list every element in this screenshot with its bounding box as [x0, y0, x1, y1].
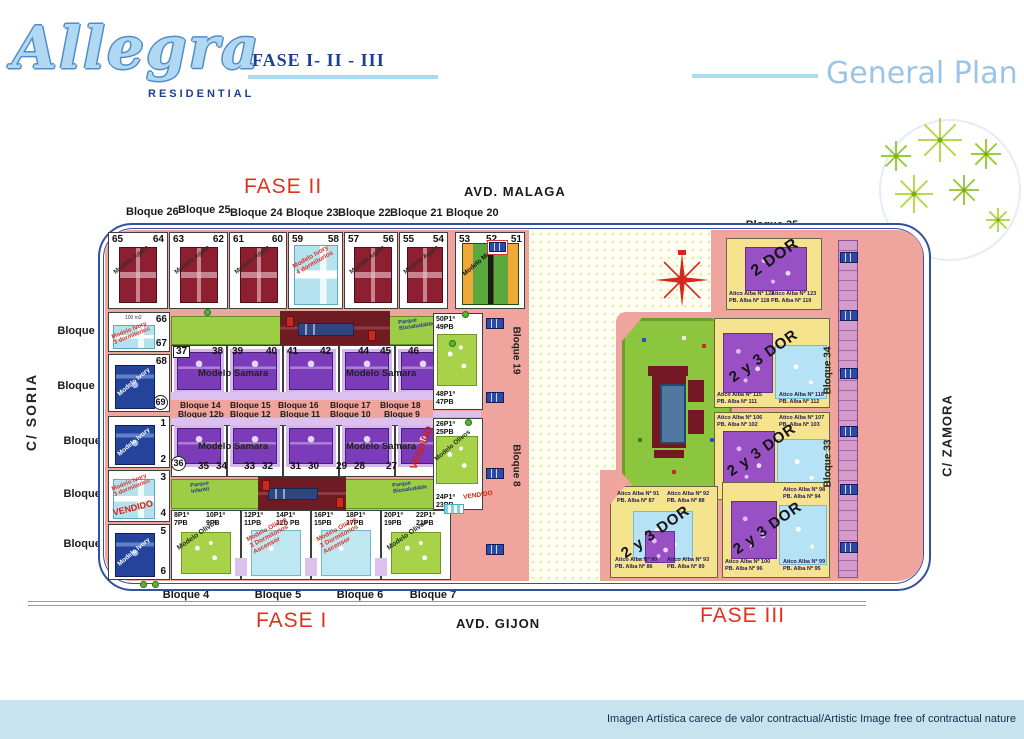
- bloque-label-25: Bloque 25: [178, 204, 231, 216]
- atico-label: Atico Alba Nº 100 PB. Alba Nº 96: [725, 559, 770, 572]
- vehicle-icon: [298, 323, 354, 336]
- tree-icon: [152, 581, 159, 588]
- phases-title: FASE I- II - III: [252, 50, 385, 71]
- street-label-malaga: AVD. MALAGA: [464, 184, 566, 199]
- bloque-label-33: Bloque 33: [823, 419, 834, 509]
- building-samara: [289, 352, 333, 390]
- street-edge-line: [28, 601, 866, 606]
- vehicle-icon: [268, 488, 318, 500]
- plot-number: 36: [171, 456, 186, 471]
- plot-number: 37: [173, 346, 190, 358]
- tree-icon: [449, 340, 456, 347]
- plot-number: 58: [328, 235, 339, 245]
- garage-band: [433, 411, 481, 417]
- model-label: Modelo Samara: [198, 368, 268, 379]
- compass-rose-icon: [652, 250, 712, 310]
- plot-number: 33: [244, 462, 255, 472]
- plot-number: 55: [403, 235, 414, 245]
- plot-cell: 1 2 Modelo Ivory: [108, 416, 170, 468]
- plot-number: 64: [153, 235, 164, 245]
- atico-label: Atico Alba Nº 98 PB. Alba Nº 94: [783, 487, 825, 500]
- clubhouse: [654, 450, 684, 458]
- plot-number: 42: [320, 347, 331, 357]
- area-note: 100 m2: [125, 315, 142, 321]
- street-label-gijon: AVD. GIJON: [456, 616, 540, 631]
- plot-number: 29: [336, 462, 347, 472]
- garden-speck: [672, 470, 676, 474]
- plot-number: 67: [156, 339, 167, 349]
- plot-number: 46: [408, 347, 419, 357]
- parking-stall-icon: [489, 242, 506, 252]
- crosswalk: [444, 504, 464, 514]
- plot-cell: 5 6 Modelo Ivory: [108, 524, 170, 580]
- page-title: General Plan: [826, 56, 1018, 91]
- garage-band: [235, 558, 247, 576]
- car-icon: [368, 330, 376, 341]
- bloque-label-21: Bloque 21: [390, 207, 443, 219]
- plot-number: 69: [153, 395, 168, 410]
- disclaimer-text: Imagen Artística carece de valor contrac…: [607, 713, 1016, 725]
- plot-number: 57: [348, 235, 359, 245]
- street-label-zamora: C/ ZAMORA: [940, 381, 955, 491]
- building-samara: [289, 428, 333, 464]
- plot-cell: 55 54 Modelo Agata: [399, 232, 448, 309]
- phase-label-fase2: FASE II: [244, 175, 322, 199]
- plot-number: 39: [232, 347, 243, 357]
- street-label-soria: C/ SORIA: [23, 357, 39, 467]
- plot-number: 4: [160, 509, 166, 519]
- atico-label: Atico Alba Nº 90 PB. Alba Nº 86: [615, 557, 657, 570]
- plot-number: 27: [386, 462, 397, 472]
- title-rule: [692, 74, 818, 78]
- plot-number: 41: [287, 347, 298, 357]
- bloque-label-20: Bloque 20: [446, 207, 499, 219]
- atico-label: Atico Alba Nº 116 PB. Alba Nº 112: [779, 392, 824, 405]
- car-icon: [262, 480, 270, 491]
- phases-underline: [248, 75, 438, 79]
- garden-speck: [642, 338, 646, 342]
- atico-label: Atico Alba Nº 122 PB. Alba Nº 118: [729, 291, 774, 304]
- garden-speck: [682, 336, 686, 340]
- atico-label: Atico Alba Nº 92 PB. Alba Nº 88: [667, 491, 709, 504]
- clubhouse: [688, 410, 704, 434]
- building-alba: [775, 345, 827, 399]
- garden-speck: [702, 344, 706, 348]
- tree-icon: [465, 419, 472, 426]
- plot-number: 61: [233, 235, 244, 245]
- building-olivos: [437, 334, 477, 386]
- bloque-label-22: Bloque 22: [338, 207, 391, 219]
- parking-stall-icon: [840, 252, 858, 263]
- tree-icon: [204, 309, 211, 316]
- unit-label: 26P1ª 25PB: [436, 421, 455, 436]
- parking-stall-icon: [486, 392, 504, 403]
- tree-icon: [140, 581, 147, 588]
- plot-number: 45: [380, 347, 391, 357]
- plot-cell: 68 69 Modelo Ivory: [108, 354, 170, 412]
- model-label: Modelo Samara: [346, 441, 416, 452]
- plot-number: 59: [292, 235, 303, 245]
- brand-logo-subtitle: RESIDENTIAL: [148, 88, 254, 100]
- unit-label: 48P1ª 47PB: [436, 391, 455, 406]
- parking-stall-icon: [486, 544, 504, 555]
- bloque-label-8: Bloque 8: [511, 421, 522, 511]
- garage-band: [171, 392, 451, 400]
- general-plan-page: Allegra RESIDENTIAL FASE I- II - III Gen…: [0, 0, 1024, 739]
- parking-stall-icon: [486, 318, 504, 329]
- plot-number: 44: [358, 347, 369, 357]
- plot-number: 68: [156, 357, 167, 367]
- parking-stall-icon: [840, 426, 858, 437]
- atico-label: Atico Alba Nº 106 PB. Alba Nº 102: [717, 415, 762, 428]
- plot-cell: 63 62 Modelo Agata: [169, 232, 228, 309]
- plot-cell: 3 4 Modelo Ivory 3 dormitorios VENDIDO: [108, 470, 170, 522]
- bloque-label-26: Bloque 26: [126, 206, 179, 218]
- bloque-label-19: Bloque 19: [511, 306, 522, 396]
- plot-number: 3: [160, 473, 166, 483]
- parking-stall-icon: [840, 484, 858, 495]
- parking-stall-icon: [840, 368, 858, 379]
- atico-label: Atico Alba Nº 93 PB. Alba Nº 89: [667, 557, 709, 570]
- plot-number: 60: [272, 235, 283, 245]
- plot-number: 40: [266, 347, 277, 357]
- plot-cell: 59 58 Modelo Ivory 4 dormitorios: [288, 232, 343, 309]
- bloque-label-23: Bloque 23: [286, 207, 339, 219]
- unit-label: 50P1ª 49PB: [436, 316, 455, 331]
- unit-label: 12P1ª 11PB: [244, 512, 263, 527]
- plot-number: 35: [198, 462, 209, 472]
- parking-stall-icon: [840, 310, 858, 321]
- plot-number: 63: [173, 235, 184, 245]
- garage-band: [171, 418, 451, 425]
- phase-label-fase1: FASE I: [256, 609, 327, 633]
- unit-label: 16P1ª 15PB: [314, 512, 333, 527]
- plot-number: 1: [160, 419, 166, 429]
- garden-speck: [638, 438, 642, 442]
- plot-cell: 61 60 Modelo Agata: [229, 232, 287, 309]
- parking-strip: [838, 240, 858, 578]
- plot-number: 32: [262, 462, 273, 472]
- plot-number: 66: [156, 315, 167, 325]
- atico-label: Atico Alba Nº 115 PB. Alba Nº 111: [717, 392, 762, 405]
- plot-number: 34: [216, 462, 227, 472]
- plot-cell: 100 m2 66 67 Modelo Ivory 3 dormitorios: [108, 312, 170, 352]
- plot-cell: 57 56 Modelo Agata: [344, 232, 398, 309]
- garage-band: [375, 558, 387, 576]
- atico-label: Atico Alba Nº 123 PB. Alba Nº 119: [771, 291, 816, 304]
- atico-label: Atico Alba Nº 91 PB. Alba Nº 87: [617, 491, 659, 504]
- parking-stall-icon: [840, 542, 858, 553]
- plot-number: 65: [112, 235, 123, 245]
- bloque-label-24: Bloque 24: [230, 207, 283, 219]
- park-label: Parque Infantil: [190, 480, 210, 495]
- plot-number: 5: [160, 527, 166, 537]
- phase-label-fase3: FASE III: [700, 604, 785, 628]
- plot-number: 30: [308, 462, 319, 472]
- car-icon: [336, 497, 344, 508]
- parking-stall-icon: [487, 240, 508, 255]
- swimming-pool: [660, 384, 686, 444]
- unit-label: 20P1ª 19PB: [384, 512, 403, 527]
- plot-number: 31: [290, 462, 301, 472]
- model-label: Modelo Samara: [346, 368, 416, 379]
- car-icon: [286, 316, 294, 327]
- atico-label: Atico Alba Nº 107 PB. Alba Nº 103: [779, 415, 824, 428]
- plot-cell: 65 64 Modelo Agata: [108, 232, 168, 309]
- bloque-label-34: Bloque 34: [823, 326, 834, 416]
- clubhouse: [688, 380, 704, 402]
- unit-label: 8P1ª 7PB: [174, 512, 189, 527]
- garage-band: [305, 558, 317, 576]
- tree-icon: [462, 311, 469, 318]
- plot-number: 6: [160, 567, 166, 577]
- atico-label: Atico Alba Nº 99 PB. Alba Nº 95: [783, 559, 825, 572]
- footer-band: Imagen Artística carece de valor contrac…: [0, 700, 1024, 739]
- plot-number: 28: [354, 462, 365, 472]
- plot-number: 56: [383, 235, 394, 245]
- model-label: Modelo Samara: [198, 441, 268, 452]
- clubhouse: [648, 366, 688, 376]
- plot-number: 62: [213, 235, 224, 245]
- plot-number: 38: [212, 347, 223, 357]
- plot-number: 2: [160, 455, 166, 465]
- brand-logo: Allegra: [12, 14, 261, 82]
- parking-stall-icon: [486, 468, 504, 479]
